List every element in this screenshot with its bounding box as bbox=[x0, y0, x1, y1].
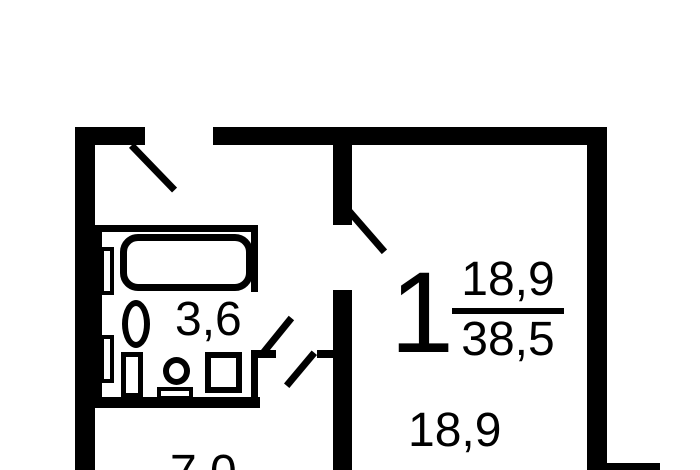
toilet-bowl-icon bbox=[122, 300, 150, 348]
sink-icon bbox=[163, 357, 190, 385]
room1-total-area-label: 38,5 bbox=[450, 316, 566, 364]
wall-top-right-segment bbox=[213, 127, 607, 145]
room1-number-label: 1 bbox=[390, 256, 454, 371]
entrance-door-swing bbox=[129, 143, 177, 192]
corridor-door-swing bbox=[284, 351, 317, 388]
towel-rail-top-icon bbox=[100, 247, 114, 295]
bathroom-wall-top bbox=[95, 225, 258, 232]
room1-living-area-label: 18,9 bbox=[450, 256, 566, 304]
bathroom-area-label: 3,6 bbox=[175, 296, 242, 344]
toilet-tank-icon bbox=[121, 352, 143, 398]
towel-rail-bottom-icon bbox=[100, 335, 114, 383]
bathtub-icon bbox=[120, 234, 253, 291]
room1-floor-area-label: 18,9 bbox=[408, 407, 501, 455]
bottom-room-area-label: 7,0 bbox=[170, 449, 237, 470]
room1-door-swing bbox=[346, 208, 387, 254]
wall-outer-left bbox=[75, 127, 95, 470]
bathroom-wall-right-lower bbox=[251, 352, 258, 403]
corridor-door-jamb-right bbox=[317, 350, 333, 358]
wall-bottom-right-stub bbox=[605, 463, 660, 470]
apartment-floor-plan: 1 18,9 38,5 18,9 3,6 7,0 bbox=[0, 0, 700, 470]
washing-machine-icon bbox=[205, 352, 242, 393]
sink-pedestal-icon bbox=[157, 387, 193, 400]
wall-outer-right bbox=[587, 127, 607, 470]
partition-room1-lower bbox=[333, 290, 352, 470]
bathroom-door-swing bbox=[261, 316, 294, 355]
